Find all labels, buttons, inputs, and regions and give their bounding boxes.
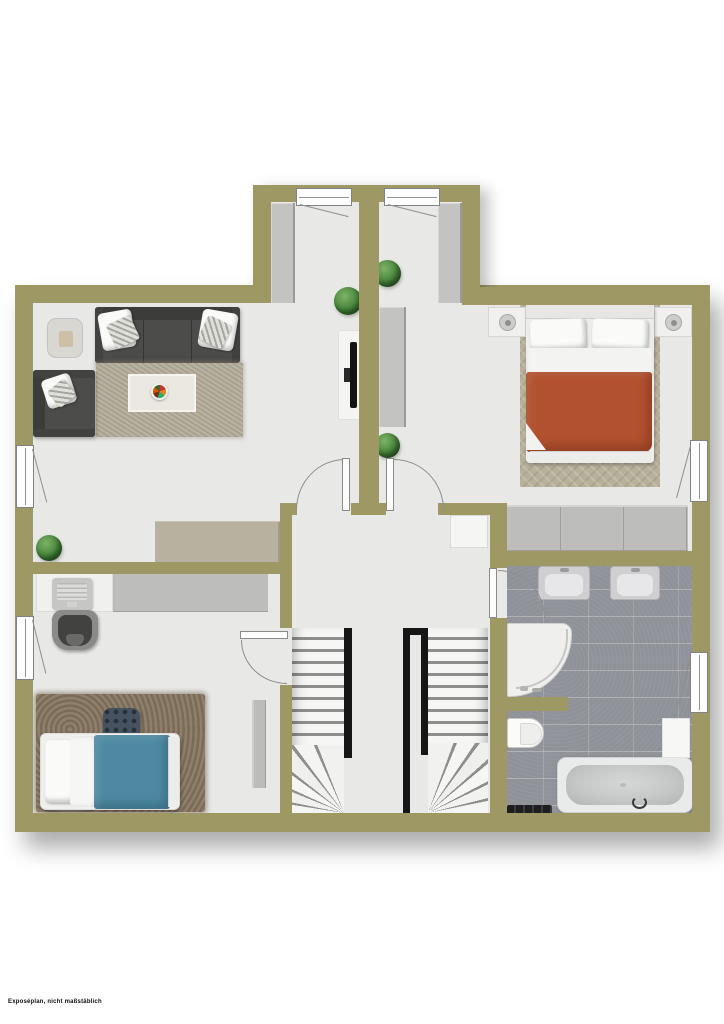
- floor-plan: Exposéplan, nicht maßstäblich: [0, 0, 724, 1024]
- wall-living-kids: [15, 562, 292, 574]
- sofa-seam: [143, 320, 144, 363]
- stair-railing: [403, 628, 428, 635]
- living-door-leaf: [342, 458, 350, 511]
- window-mullion: [387, 197, 437, 198]
- lamp-center: [505, 320, 511, 326]
- wall-central: [359, 185, 379, 515]
- lamp-center: [671, 320, 677, 326]
- side-table-tray: [59, 331, 73, 347]
- window-mullion: [25, 448, 26, 505]
- single-bed: [40, 733, 180, 810]
- footboard: [530, 451, 650, 463]
- nightstand-right: [654, 307, 692, 337]
- faucet: [560, 568, 569, 572]
- balcony-window-left: [296, 188, 352, 206]
- laptop: [52, 578, 92, 610]
- bathroom-window: [690, 652, 708, 713]
- wall-bath-left-lower: [490, 618, 507, 813]
- laptop-touchpad: [67, 602, 77, 607]
- plant: [334, 287, 362, 315]
- basin: [545, 574, 583, 596]
- sofa-seam: [191, 320, 192, 363]
- bedroom-door-leaf: [386, 458, 394, 511]
- bathroom-door-leaf: [489, 568, 497, 618]
- balcony-window-right: [384, 188, 440, 206]
- desk-chair: [52, 610, 98, 650]
- staircase-left-winder: [292, 745, 344, 813]
- wall-shower-stub: [490, 697, 568, 711]
- double-bed: [526, 305, 654, 463]
- wall-left: [15, 285, 33, 832]
- bed-pillow-left: [529, 318, 586, 351]
- wall-bay-left: [253, 185, 271, 303]
- window-mullion: [699, 443, 700, 499]
- wall-hall-left-lower: [280, 685, 292, 813]
- fruit-bowl: [151, 383, 168, 400]
- bedroom-dresser: [379, 307, 406, 427]
- bathtub-drain: [620, 783, 626, 787]
- shower-fitting: [532, 688, 542, 692]
- built-in-cabinet-bedroom-bay: [438, 203, 462, 303]
- window-mullion: [299, 197, 349, 198]
- kids-wardrobe: [113, 570, 268, 612]
- staircase-right-winder: [428, 743, 488, 813]
- window-mullion: [699, 655, 700, 710]
- bathroom-cabinet: [662, 718, 690, 758]
- stair-railing: [344, 628, 352, 758]
- bed-pillow-right: [591, 318, 648, 351]
- headboard: [526, 305, 654, 319]
- staircase-right-run: [428, 628, 488, 746]
- stair-railing: [421, 628, 428, 755]
- wall-top-left: [15, 285, 271, 303]
- wall-shelf: [252, 700, 266, 788]
- kids-room-window: [16, 616, 34, 680]
- basin: [617, 574, 653, 596]
- shower-fitting: [520, 686, 528, 691]
- wall-bottom: [15, 813, 710, 832]
- wall-bay-right: [462, 185, 480, 305]
- nightstand-left: [488, 307, 526, 337]
- wall-hall-top-b: [351, 503, 386, 515]
- staircase-left-run: [292, 628, 344, 748]
- toilet-seat: [520, 723, 542, 745]
- blue-blanket: [94, 735, 170, 809]
- hallway-cabinet: [450, 515, 488, 548]
- washbasin-right: [610, 566, 660, 600]
- stair-railing: [403, 628, 410, 813]
- kids-door-leaf: [240, 631, 288, 639]
- washbasin-left: [538, 566, 590, 600]
- beige-sideboard: [155, 521, 280, 562]
- footboard: [168, 737, 179, 807]
- laptop-keyboard: [57, 583, 87, 600]
- wall-top-right: [462, 287, 710, 305]
- bedroom-wardrobe: [498, 505, 688, 551]
- bathtub: [557, 757, 693, 813]
- built-in-cabinet-living-bay: [271, 203, 295, 303]
- wall-bedroom-bath: [490, 551, 710, 566]
- wall-hall-top-a: [280, 503, 297, 515]
- wall-bath-left-upper: [490, 503, 507, 568]
- bathtub-faucet: [632, 796, 647, 809]
- faucet: [631, 568, 640, 572]
- side-table: [47, 318, 83, 358]
- living-room-window: [16, 445, 34, 508]
- window-mullion: [25, 619, 26, 677]
- disclaimer-text: Exposéplan, nicht maßstäblich: [8, 999, 102, 1005]
- bedroom-window: [690, 440, 708, 502]
- toilet: [507, 718, 544, 748]
- red-blanket: [526, 372, 652, 452]
- plant: [36, 535, 62, 561]
- tv: [350, 342, 357, 408]
